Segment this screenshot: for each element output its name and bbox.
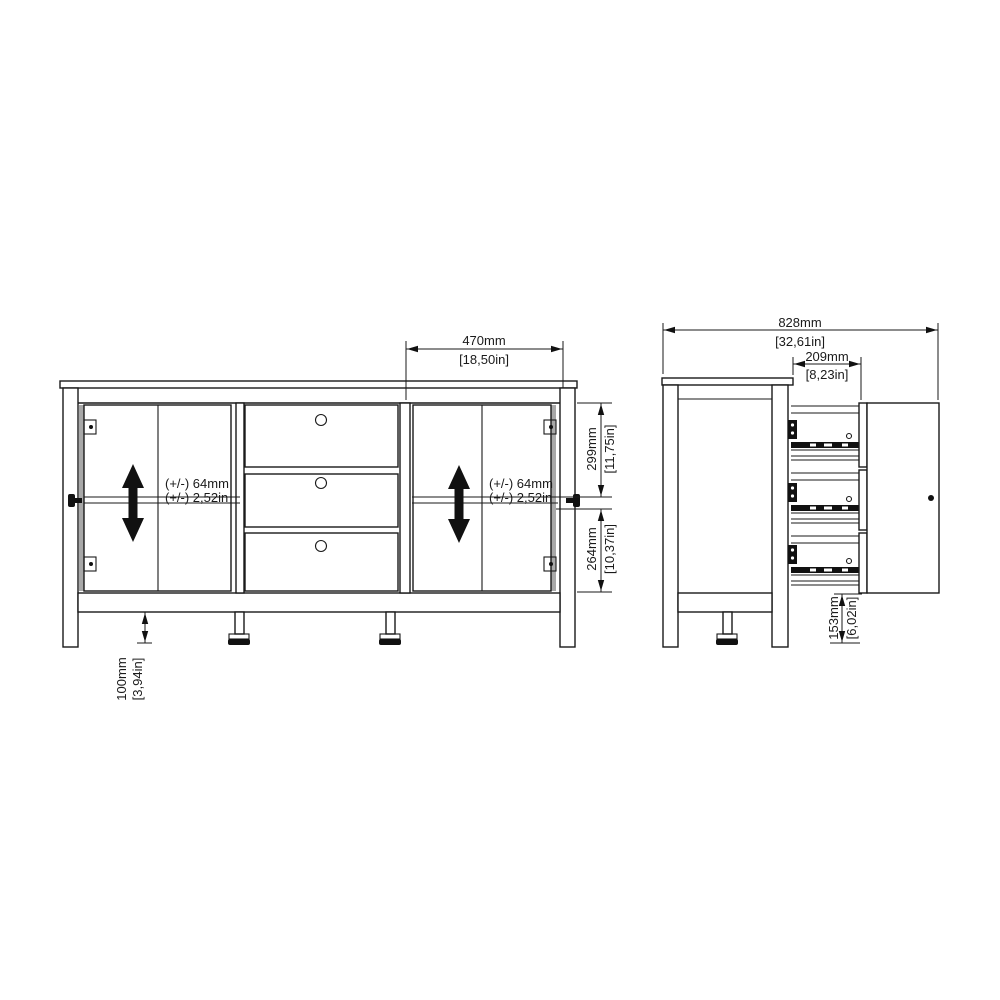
drawer-front-3[interactable]: [245, 533, 398, 591]
bracket-hole: [791, 556, 794, 559]
shelf-adjust-right-line2: (+/-) 2,52in: [489, 490, 552, 505]
slide-bracket: [788, 545, 797, 564]
dim-bottom-clearance-mm: 153mm: [826, 596, 841, 639]
rail-notch: [824, 507, 832, 510]
screw-icon: [847, 559, 852, 564]
dim-door-width: 470mm [18,50in]: [406, 333, 563, 400]
open-door-side: [867, 403, 939, 593]
door-knob-icon[interactable]: [68, 494, 75, 507]
right-side-panel: [560, 388, 575, 647]
left-stile: [236, 403, 244, 593]
shelf-adjust-left-line1: (+/-) 64mm: [165, 476, 229, 491]
right-stile: [400, 403, 410, 593]
screw-icon: [847, 434, 852, 439]
dim-leg-height-in: [3,94in]: [130, 658, 145, 701]
rail-notch: [824, 444, 832, 447]
dim-bottom-clearance-in: [6,02in]: [844, 597, 859, 640]
right-door-section: (+/-) 64mm (+/-) 2,52in: [412, 405, 580, 591]
arrowhead-icon: [551, 346, 562, 352]
rail-notch: [842, 569, 848, 572]
dim-drawer-extension-in: [8,23in]: [806, 367, 849, 382]
arrowhead-icon: [598, 510, 604, 521]
rail-notch: [810, 569, 816, 572]
extended-drawer-1: [788, 403, 874, 467]
arrowhead-icon: [142, 613, 148, 624]
dim-door-width-in: [18,50in]: [459, 352, 509, 367]
extended-drawer-2: [788, 470, 874, 530]
hinge-pin-icon: [89, 562, 93, 566]
foot-pad: [228, 639, 250, 645]
bracket-hole: [791, 548, 794, 551]
drawer-stack-front: [245, 405, 398, 591]
dim-total-depth-in: [32,61in]: [775, 334, 825, 349]
bottom-rail: [78, 593, 560, 612]
foot-base: [229, 634, 249, 639]
left-side-panel: [63, 388, 78, 647]
extended-drawer-3: [788, 533, 874, 593]
dim-upper-height-in: [11,75in]: [602, 425, 617, 474]
rail-notch: [810, 444, 816, 447]
rail-notch: [842, 507, 848, 510]
drawer-front-edge: [859, 403, 867, 467]
hinge-pin-icon: [549, 562, 553, 566]
front-feet: [228, 612, 401, 645]
back-panel: [663, 385, 678, 647]
top-board-side: [662, 378, 793, 385]
foot-base: [717, 634, 737, 639]
screw-icon: [847, 497, 852, 502]
dim-drawer-extension: 209mm [8,23in]: [793, 349, 861, 400]
dim-door-width-mm: 470mm: [462, 333, 505, 348]
shelf-adjust-left-line2: (+/-) 2,52in: [165, 490, 228, 505]
dim-drawer-extension-mm: 209mm: [805, 349, 848, 364]
foot-base: [380, 634, 400, 639]
arrowhead-icon: [926, 327, 937, 333]
dim-leg-height-mm: 100mm: [114, 657, 129, 700]
side-view: 828mm [32,61in] 209mm [8,23in] 153mm [6,…: [662, 315, 939, 647]
front-view: (+/-) 64mm (+/-) 2,52in (+/-): [60, 333, 617, 701]
door-knob-stem: [566, 498, 574, 503]
technical-drawing-sideboard: (+/-) 64mm (+/-) 2,52in (+/-): [0, 0, 1000, 1000]
side-carcass: [662, 378, 793, 647]
drawer-front-edge: [859, 470, 867, 530]
arrowhead-icon: [794, 361, 805, 367]
rail-notch: [842, 444, 848, 447]
top-board: [60, 381, 577, 388]
left-door-section: (+/-) 64mm (+/-) 2,52in: [68, 405, 240, 591]
bracket-hole: [791, 423, 794, 426]
arrowhead-icon: [664, 327, 675, 333]
dim-lower-height-in: [10,37in]: [602, 524, 617, 574]
drawing-svg: (+/-) 64mm (+/-) 2,52in (+/-): [0, 0, 1000, 1000]
dim-total-depth: 828mm [32,61in]: [663, 315, 938, 400]
rail-notch: [824, 569, 832, 572]
drawer-front-edge: [859, 533, 867, 593]
arrowhead-icon: [407, 346, 418, 352]
arrowhead-icon: [598, 485, 604, 496]
hinge-pin-icon: [549, 425, 553, 429]
drawer-front-2[interactable]: [245, 474, 398, 527]
foot-shaft: [386, 612, 395, 634]
rail-notch: [810, 507, 816, 510]
hinge-pin-icon: [89, 425, 93, 429]
dim-total-depth-mm: 828mm: [778, 315, 821, 330]
arrowhead-icon: [598, 580, 604, 591]
dim-leg-height: 100mm [3,94in]: [78, 612, 152, 701]
dim-upper-height-mm: 299mm: [584, 427, 599, 470]
door-knob-icon[interactable]: [573, 494, 580, 507]
slide-bracket: [788, 420, 797, 439]
foot-pad: [379, 639, 401, 645]
dim-bottom-clearance: 153mm [6,02in]: [826, 594, 862, 643]
shelf-adjust-right-line1: (+/-) 64mm: [489, 476, 553, 491]
foot-shaft: [723, 612, 732, 634]
bracket-hole: [791, 431, 794, 434]
dim-lower-height-mm: 264mm: [584, 527, 599, 570]
foot-shaft: [235, 612, 244, 634]
slide-bracket: [788, 483, 797, 502]
door-knob-icon[interactable]: [928, 495, 934, 501]
bracket-hole: [791, 494, 794, 497]
bracket-hole: [791, 486, 794, 489]
arrowhead-icon: [598, 404, 604, 415]
foot-pad: [716, 639, 738, 645]
door-knob-stem: [74, 498, 82, 503]
arrowhead-icon: [142, 631, 148, 642]
bottom-rail-side: [678, 593, 772, 612]
arrowhead-icon: [849, 361, 860, 367]
front-frame-panel: [772, 385, 788, 647]
